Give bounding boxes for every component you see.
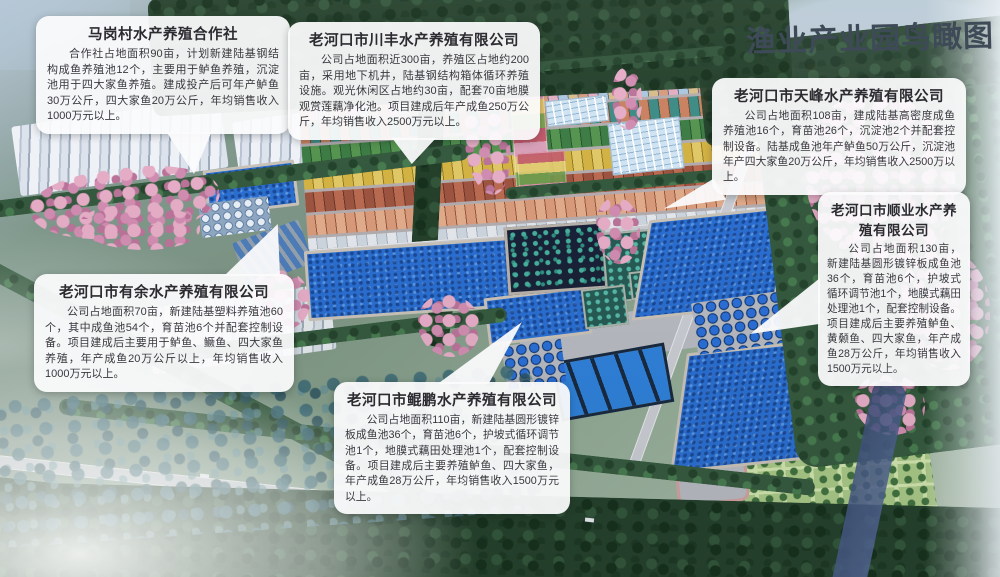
callout-body: 公司占地面积110亩，新建陆基圆形镀锌板成鱼池36个，育苗池6个，护坡式循环调节… — [345, 413, 559, 505]
callout-body: 公司占地面积130亩，新建陆基圆形镀锌板成鱼池36个，育苗池6个，护坡式循环调节… — [827, 242, 961, 377]
callout-magang: 马岗村水产养殖合作社 合作社占地面积90亩，计划新建陆基钢结构成鱼养殖池12个，… — [36, 16, 290, 134]
callout-shunye: 老河口市顺业水产养殖有限公司 公司占地面积130亩，新建陆基圆形镀锌板成鱼池36… — [818, 192, 970, 386]
aerial-park-poster: 渔业产业园鸟瞰图 马岗村水产养殖合作社 合作社占地面积90亩，计划新建陆基钢结构… — [0, 0, 1000, 577]
blossom-lawn — [612, 68, 642, 130]
lotus-pond — [504, 221, 608, 296]
callout-title: 老河口市天峰水产养殖有限公司 — [723, 85, 955, 106]
callout-body: 公司占地面积108亩，建成陆基高密度成鱼养殖池16个，育苗池26个，沉淀池2个并… — [723, 109, 955, 186]
callout-title: 老河口市川丰水产养殖有限公司 — [299, 29, 529, 50]
callout-chuanfeng: 老河口市川丰水产养殖有限公司 公司占地面积近300亩，养殖区占地约200亩，采用… — [288, 22, 540, 140]
callout-title: 马岗村水产养殖合作社 — [47, 23, 279, 44]
callout-body: 公司占地面积近300亩，养殖区占地约200亩，采用地下机井，陆基钢结构箱体循环养… — [299, 53, 529, 131]
callout-title: 老河口市鲲鹏水产养殖有限公司 — [345, 389, 559, 410]
blossom-lotus-edge — [596, 198, 640, 264]
callout-body: 公司占地面积70亩，新建陆基塑料养殖池60个，其中成鱼池54个，育苗池6个并配套… — [45, 305, 283, 383]
callout-title: 老河口市有余水产养殖有限公司 — [45, 281, 283, 302]
teal-pond-2 — [581, 284, 630, 329]
callout-body: 合作社占地面积90亩，计划新建陆基钢结构成鱼养殖池12个，主要用于鲈鱼养殖，沉淀… — [47, 47, 279, 125]
poster-title: 渔业产业园鸟瞰图 — [741, 11, 998, 62]
callout-youyu: 老河口市有余水产养殖有限公司 公司占地面积70亩，新建陆基塑料养殖池60个，其中… — [34, 274, 294, 392]
car — [585, 518, 594, 523]
car — [200, 474, 209, 479]
callout-tianfeng: 老河口市天峰水产养殖有限公司 公司占地面积108亩，建成陆基高密度成鱼养殖池16… — [712, 78, 966, 195]
callout-title: 老河口市顺业水产养殖有限公司 — [827, 199, 961, 239]
callout-kunpeng: 老河口市鲲鹏水产养殖有限公司 公司占地面积110亩，新建陆基圆形镀锌板成鱼池36… — [334, 382, 570, 514]
